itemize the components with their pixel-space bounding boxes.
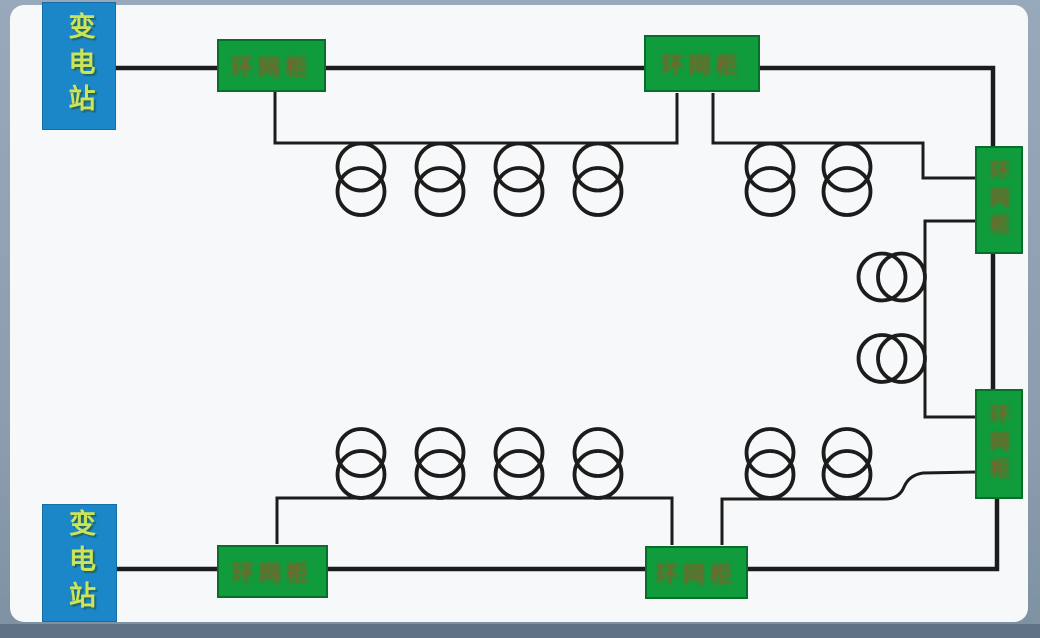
transformer-symbol	[417, 429, 464, 498]
transformer-symbol	[575, 144, 622, 216]
rmu-box-right-upper: 环网柜	[975, 146, 1023, 254]
rmu-box-bottom-left: 环网柜	[217, 545, 328, 598]
rmu-box-top-left: 环网柜	[217, 39, 326, 92]
rmu-label: 环网柜	[985, 160, 1014, 241]
transformer-symbol	[859, 254, 926, 301]
substation-box-top: 变电站	[42, 2, 116, 130]
rmu-label: 环网柜	[985, 404, 1014, 485]
transformer-symbol	[824, 429, 871, 498]
transformer-symbol	[859, 335, 926, 382]
rmu-box-top-middle: 环网柜	[644, 35, 760, 92]
rmu-label: 环网柜	[231, 50, 312, 82]
transformer-symbol	[338, 429, 385, 498]
transformer-symbol	[824, 144, 871, 216]
transformer-symbol	[747, 429, 794, 498]
rmu-label: 环网柜	[661, 48, 742, 80]
feeder-line	[275, 91, 677, 143]
transformer-symbol	[575, 429, 622, 498]
trunk-line	[759, 68, 993, 147]
transformer-symbol	[496, 429, 543, 498]
feeder-line	[722, 472, 976, 545]
rmu-label: 环网柜	[232, 556, 313, 588]
transformer-symbol	[338, 144, 385, 216]
wiring-diagram	[0, 0, 1040, 638]
rmu-box-right-lower: 环网柜	[975, 389, 1023, 499]
feeder-line	[277, 498, 672, 545]
rmu-label: 环网柜	[656, 557, 737, 589]
rmu-box-bottom-middle: 环网柜	[645, 546, 748, 599]
transformers	[338, 144, 926, 499]
feeder-line	[925, 221, 976, 417]
trunk-line	[747, 498, 997, 569]
transformer-symbol	[417, 144, 464, 216]
transformer-symbol	[747, 144, 794, 216]
transformer-symbol	[496, 144, 543, 216]
feeder-line	[713, 93, 976, 178]
substation-box-bottom: 变电站	[42, 504, 117, 622]
